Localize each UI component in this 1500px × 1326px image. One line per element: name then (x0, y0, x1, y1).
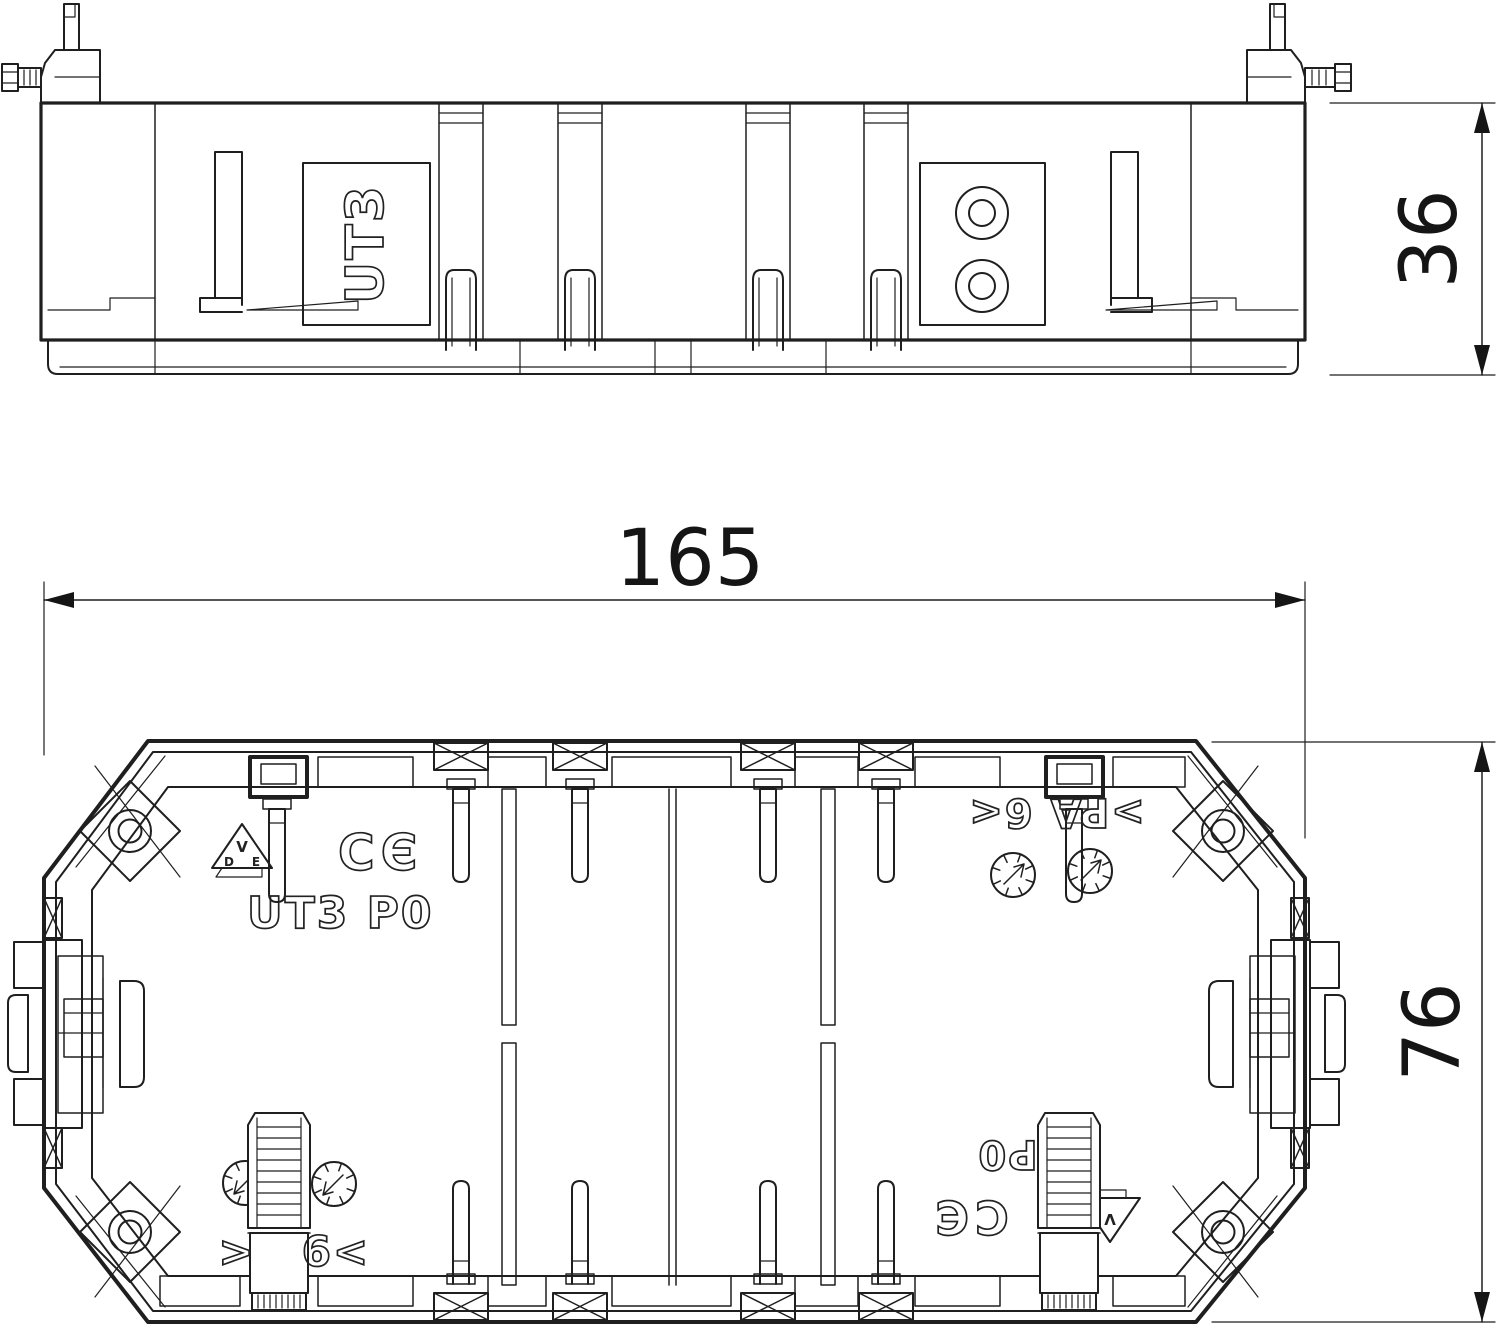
side-channels (439, 103, 908, 350)
technical-drawing-page: UT3 (0, 0, 1500, 1326)
side-clamp-right (1247, 4, 1351, 103)
side-interior-walls (48, 103, 1298, 340)
product-code-bottom: P0 (976, 1131, 1037, 1177)
ce-mark-icon: CЄ (338, 824, 419, 882)
material-marking-left-part: > (218, 1227, 255, 1276)
snap-clip-icon (753, 270, 783, 350)
plan-view: V V D E CЄ CЄ UT3 P0 >PA 6< P0 (8, 741, 1345, 1322)
plan-product-label: UT3 P0 (247, 888, 434, 939)
svg-text:V: V (236, 838, 248, 856)
bowtie-tab-icon (434, 1293, 488, 1320)
dimension-depth: 36 (1330, 103, 1495, 375)
side-bottom-rim (48, 340, 1298, 374)
snap-clip-icon (871, 270, 901, 350)
material-marking: >PA 6< (967, 789, 1144, 835)
screw-right-icon (1305, 64, 1351, 91)
dimension-height: 76 (1212, 742, 1495, 1322)
bowtie-tab-icon (553, 1293, 607, 1320)
date-stamp-dial-icon (312, 1162, 356, 1206)
date-stamp-dial-icon (1068, 849, 1112, 893)
side-label-plate: UT3 (303, 163, 430, 325)
guide-pin-icon (447, 1181, 475, 1284)
dimension-depth-value: 36 (1385, 189, 1475, 288)
dimension-height-value: 76 (1388, 982, 1478, 1081)
bowtie-tab-icon (859, 1293, 913, 1320)
leveling-column-right (1038, 1113, 1100, 1310)
svg-text:D: D (224, 855, 234, 869)
svg-text:E: E (252, 855, 260, 869)
side-clamp-left (2, 4, 100, 103)
partition-dividers (502, 789, 835, 1285)
screw-left-icon (2, 64, 41, 91)
svg-text:CЄ: CЄ (338, 824, 419, 882)
side-product-label: UT3 (336, 184, 396, 304)
mount-tab-icon (250, 757, 307, 797)
vde-mark-icon: V D E (212, 824, 272, 877)
technical-drawing: UT3 (0, 0, 1500, 1326)
bowtie-tab-icon (434, 743, 488, 770)
snap-clip-icon (446, 270, 476, 350)
bowtie-tab-icon (44, 898, 62, 938)
guide-pin-icon (263, 799, 291, 902)
guide-pin-icon (566, 1181, 594, 1284)
side-view: UT3 (2, 4, 1351, 374)
guide-pin-icon (447, 779, 475, 882)
corner-screw-hole-bl (76, 1182, 180, 1307)
side-latch-right (1209, 940, 1345, 1128)
bowtie-tab-icon (741, 743, 795, 770)
side-body-outline (41, 103, 1305, 340)
side-hole-plate (920, 163, 1045, 325)
guide-pin-icon (872, 1181, 900, 1284)
date-stamp-dial-icon (991, 853, 1035, 897)
bowtie-tab-icon (44, 1128, 62, 1168)
bowtie-tab-icon (859, 743, 913, 770)
material-marking-right-part: 6< (302, 1227, 370, 1276)
guide-pin-icon (754, 779, 782, 882)
svg-text:CЄ: CЄ (933, 1190, 1009, 1244)
corner-screw-hole-tl (76, 756, 180, 881)
dimension-width-value: 165 (616, 514, 765, 604)
guide-pin-icon (566, 779, 594, 882)
bowtie-tab-icon (741, 1293, 795, 1320)
snap-clip-icon (565, 270, 595, 350)
ce-mark-icon: CЄ (933, 1190, 1009, 1244)
leveling-column-left (248, 1113, 310, 1310)
bowtie-tab-icon (553, 743, 607, 770)
svg-text:V: V (1104, 1210, 1116, 1228)
side-latch-left (8, 940, 144, 1128)
guide-pin-icon (754, 1181, 782, 1284)
guide-pin-icon (872, 779, 900, 882)
